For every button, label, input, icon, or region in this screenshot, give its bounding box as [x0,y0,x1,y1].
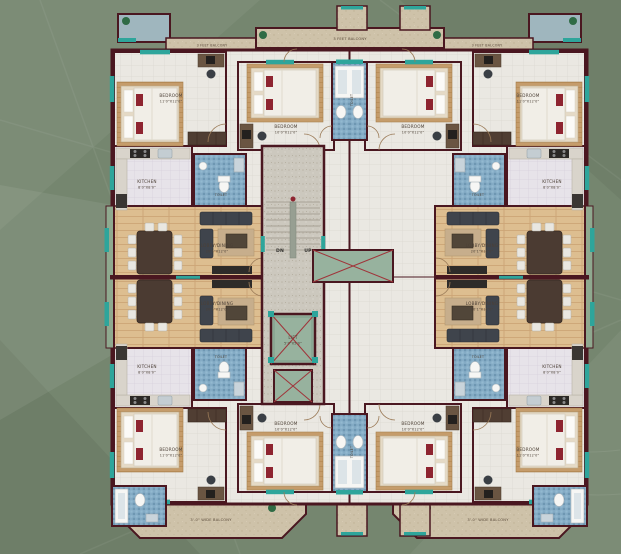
label-lobby-tr: LOBBY/DINING [466,243,499,248]
svg-text:20'1"X12'0": 20'1"X12'0" [206,250,229,254]
label-toilet-br: TOILET [471,355,484,359]
svg-text:10'0"X12'0": 10'0"X12'0" [402,428,425,432]
label-bedroom-tl-center: BEDROOM [274,124,297,129]
label-toilet-tr: TOILET [471,193,484,197]
label-lobby-bl: LOBBY/DINING [201,301,234,306]
label-kitchen-tl: KITCHEN [137,179,157,184]
svg-text:10'0"X12'0": 10'0"X12'0" [402,131,425,135]
svg-text:8'0"X8'0": 8'0"X8'0" [543,186,561,190]
label-bedroom-tr-corner: BEDROOM [516,93,539,98]
label-lobby-br: LOBBY/DINING [466,301,499,306]
label-balcony-bottom-left: 3'-0" WIDE BALCONY [190,518,232,522]
label-bedroom-tl-corner: BEDROOM [159,93,182,98]
plant-icon [122,17,130,25]
svg-text:20'1"X12'0": 20'1"X12'0" [206,308,229,312]
svg-text:20'1"X12'0": 20'1"X12'0" [471,250,494,254]
label-kitchen-tr: KITCHEN [542,179,562,184]
label-bedroom-tr-center: BEDROOM [401,124,424,129]
svg-text:20'1"X12'0": 20'1"X12'0" [471,308,494,312]
plant-icon [433,31,441,39]
label-stairs-down: DN [276,248,284,254]
label-stairs-up: UP [304,248,312,254]
label-toilet-center-top: TOILET [350,94,354,107]
toilet-bottom-right-corner [533,486,587,526]
label-bedroom-bl-corner: BEDROOM [159,447,182,452]
label-balcony-top-right: 3 FEET BALCONY [472,44,504,48]
label-bedroom-br-corner: BEDROOM [516,447,539,452]
floor-plan-drawing: BEDROOM 11'0"X12'0" BEDROOM 11'0"X12'0" … [0,0,621,554]
svg-text:10'0"X12'0": 10'0"X12'0" [275,131,298,135]
svg-text:10'0"X12'0": 10'0"X12'0" [275,428,298,432]
label-lift: LIFT [288,335,298,340]
balcony-stub-top-2 [400,6,430,30]
label-bedroom-bl-center: BEDROOM [274,421,297,426]
svg-text:11'0"X12'0": 11'0"X12'0" [160,100,183,104]
svg-text:8'0"X8'0": 8'0"X8'0" [138,186,156,190]
svg-text:11'0"X12'0": 11'0"X12'0" [160,454,183,458]
label-toilet-center-bottom: TOILET [350,446,354,459]
label-balcony-bottom-right: 3'-0" WIDE BALCONY [467,518,509,522]
unit-bottom-right [325,276,595,505]
label-toilet-bl: TOILET [214,355,227,359]
plant-icon [569,17,577,25]
label-kitchen-bl: KITCHEN [137,364,157,369]
unit-bottom-left [105,276,375,505]
duct-shaft-1 [313,250,393,282]
label-toilet-tl: TOILET [214,193,227,197]
label-lobby-tl: LOBBY/DINING [201,243,234,248]
unit-top-right [325,49,595,278]
floor-plan-canvas: BEDROOM 11'0"X12'0" BEDROOM 11'0"X12'0" … [0,0,621,554]
label-kitchen-br: KITCHEN [542,364,562,369]
svg-text:8'0"X8'0": 8'0"X8'0" [543,371,561,375]
balcony-stub-top-1 [337,6,367,30]
plant-icon [259,31,267,39]
label-balcony-top-left: 3 FEET BALCONY [197,44,229,48]
svg-text:11'0"X12'0": 11'0"X12'0" [517,454,540,458]
label-balcony-top-center: 3 FEET BALCONY [333,37,367,41]
label-bedroom-br-center: BEDROOM [401,421,424,426]
svg-text:5'0"X5'0": 5'0"X5'0" [284,342,302,346]
stair-newel [291,197,296,202]
toilet-bottom-left-corner [112,486,166,526]
unit-top-left [105,49,375,278]
svg-text:11'0"X12'0": 11'0"X12'0" [517,100,540,104]
svg-text:8'0"X8'0": 8'0"X8'0" [138,371,156,375]
duct-shaft-2 [274,370,312,402]
